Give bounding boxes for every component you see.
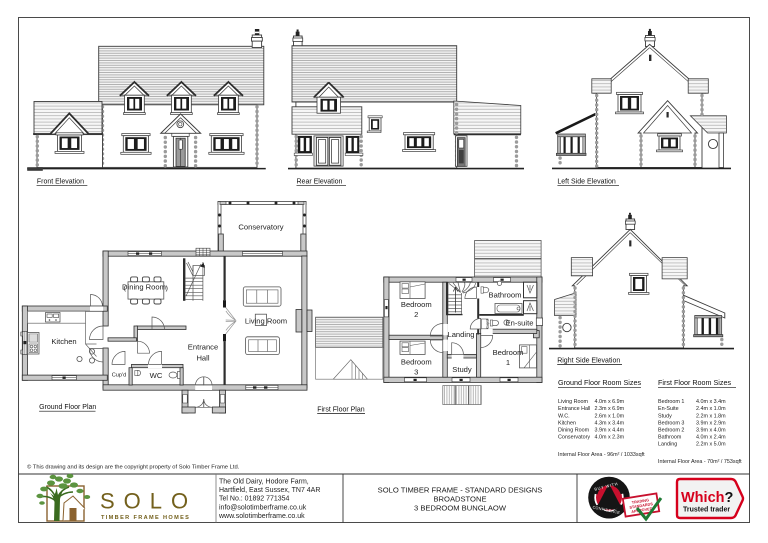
svg-text:2.3m x 6.9m: 2.3m x 6.9m [595, 406, 625, 412]
svg-text:Hartfield, East Sussex, TN7 4A: Hartfield, East Sussex, TN7 4AR [219, 487, 320, 494]
svg-text:WC: WC [150, 371, 163, 380]
svg-text:4.0m x 2.4m: 4.0m x 2.4m [696, 434, 726, 440]
svg-text:Living Room: Living Room [245, 316, 287, 325]
svg-text:Conservatory: Conservatory [558, 434, 590, 440]
svg-text:Right Side Elevation: Right Side Elevation [557, 358, 620, 365]
svg-text:3: 3 [414, 368, 418, 377]
svg-text:Ground Floor Plan: Ground Floor Plan [39, 404, 96, 411]
svg-text:Tel No.: 01892 771354: Tel No.: 01892 771354 [219, 496, 290, 503]
svg-text:SOLO: SOLO [100, 489, 197, 514]
svg-text:En-Suite: En-Suite [658, 406, 679, 412]
svg-text:Dining Room: Dining Room [558, 427, 590, 433]
svg-text:Living Room: Living Room [558, 399, 588, 405]
svg-text:Left Side Elevation: Left Side Elevation [557, 179, 615, 186]
svg-text:Bedroom 1: Bedroom 1 [658, 399, 684, 405]
svg-text:Front Elevation: Front Elevation [37, 179, 84, 186]
svg-text:Ground Floor Room Sizes: Ground Floor Room Sizes [558, 378, 641, 387]
svg-text:Entrance Hall: Entrance Hall [558, 406, 590, 412]
svg-text:BROADSTONE: BROADSTONE [433, 495, 486, 504]
svg-text:2.2m x 5.0m: 2.2m x 5.0m [696, 441, 726, 447]
svg-text:© This drawing and its design: © This drawing and its design are the co… [27, 464, 240, 471]
svg-text:Landing: Landing [658, 441, 677, 447]
svg-text:Bedroom 2: Bedroom 2 [658, 427, 684, 433]
svg-text:Study: Study [452, 365, 472, 374]
svg-text:2.6m x 1.0m: 2.6m x 1.0m [595, 413, 625, 419]
svg-text:1: 1 [506, 358, 510, 367]
svg-text:2.4m x 1.0m: 2.4m x 1.0m [696, 406, 726, 412]
svg-text:Conservatory: Conservatory [238, 223, 283, 232]
svg-text:Internal Floor Area - 70m² / 7: Internal Floor Area - 70m² / 753sqft [658, 459, 742, 465]
svg-text:3.9m x 4.0m: 3.9m x 4.0m [696, 427, 726, 433]
svg-text:Internal Floor Area - 96m² / 1: Internal Floor Area - 96m² / 1033sqft [558, 452, 645, 458]
svg-text:3 BEDROOM BUNGLAOW: 3 BEDROOM BUNGLAOW [414, 504, 507, 513]
svg-text:SOLO TIMBER FRAME - STANDARD D: SOLO TIMBER FRAME - STANDARD DESIGNS [378, 486, 543, 495]
svg-text:Cup'd: Cup'd [112, 373, 126, 379]
svg-text:Which?: Which? [681, 490, 734, 506]
svg-text:Bedroom: Bedroom [401, 358, 432, 367]
svg-text:3.9m x 4.4m: 3.9m x 4.4m [595, 427, 625, 433]
svg-text:2.2m x 1.8m: 2.2m x 1.8m [696, 413, 726, 419]
svg-text:info@solotimberframe.co.uk: info@solotimberframe.co.uk [219, 504, 307, 511]
svg-text:2: 2 [414, 310, 418, 319]
svg-text:4.0m x 6.9m: 4.0m x 6.9m [595, 399, 625, 405]
svg-text:Cup'd: Cup'd [485, 319, 489, 328]
svg-text:En-suite: En-suite [506, 318, 534, 327]
svg-text:3.9m x 2.9m: 3.9m x 2.9m [696, 420, 726, 426]
svg-text:Rear Elevation: Rear Elevation [297, 179, 343, 186]
svg-text:Kitchen: Kitchen [558, 420, 576, 426]
svg-text:Bathroom: Bathroom [489, 291, 522, 300]
svg-text:First Floor Plan: First Floor Plan [317, 407, 365, 414]
svg-text:Kitchen: Kitchen [51, 337, 76, 346]
svg-text:4.0m x 3.4m: 4.0m x 3.4m [696, 399, 726, 405]
svg-text:Bathroom: Bathroom [658, 434, 682, 440]
svg-text:Bedroom: Bedroom [401, 300, 432, 309]
svg-text:Trusted trader: Trusted trader [683, 507, 730, 514]
svg-text:Bedroom: Bedroom [493, 348, 524, 357]
svg-text:The Old Dairy, Hodore Farm,: The Old Dairy, Hodore Farm, [219, 478, 309, 485]
svg-text:Bedroom 3: Bedroom 3 [658, 420, 684, 426]
svg-text:www.solotimberframe.co.uk: www.solotimberframe.co.uk [218, 513, 305, 520]
svg-text:TIMBER FRAME HOMES: TIMBER FRAME HOMES [101, 515, 190, 521]
svg-text:Dining Room: Dining Room [122, 283, 166, 292]
svg-text:First Floor Room Sizes: First Floor Room Sizes [658, 378, 731, 387]
svg-text:W.C.: W.C. [558, 413, 570, 419]
svg-text:4.3m x 3.4m: 4.3m x 3.4m [595, 420, 625, 426]
svg-text:Study: Study [658, 413, 672, 419]
svg-text:Landing: Landing [447, 330, 474, 339]
svg-text:Hall: Hall [196, 353, 209, 362]
svg-text:Entrance: Entrance [188, 342, 218, 351]
svg-text:4.0m x 2.3m: 4.0m x 2.3m [595, 434, 625, 440]
